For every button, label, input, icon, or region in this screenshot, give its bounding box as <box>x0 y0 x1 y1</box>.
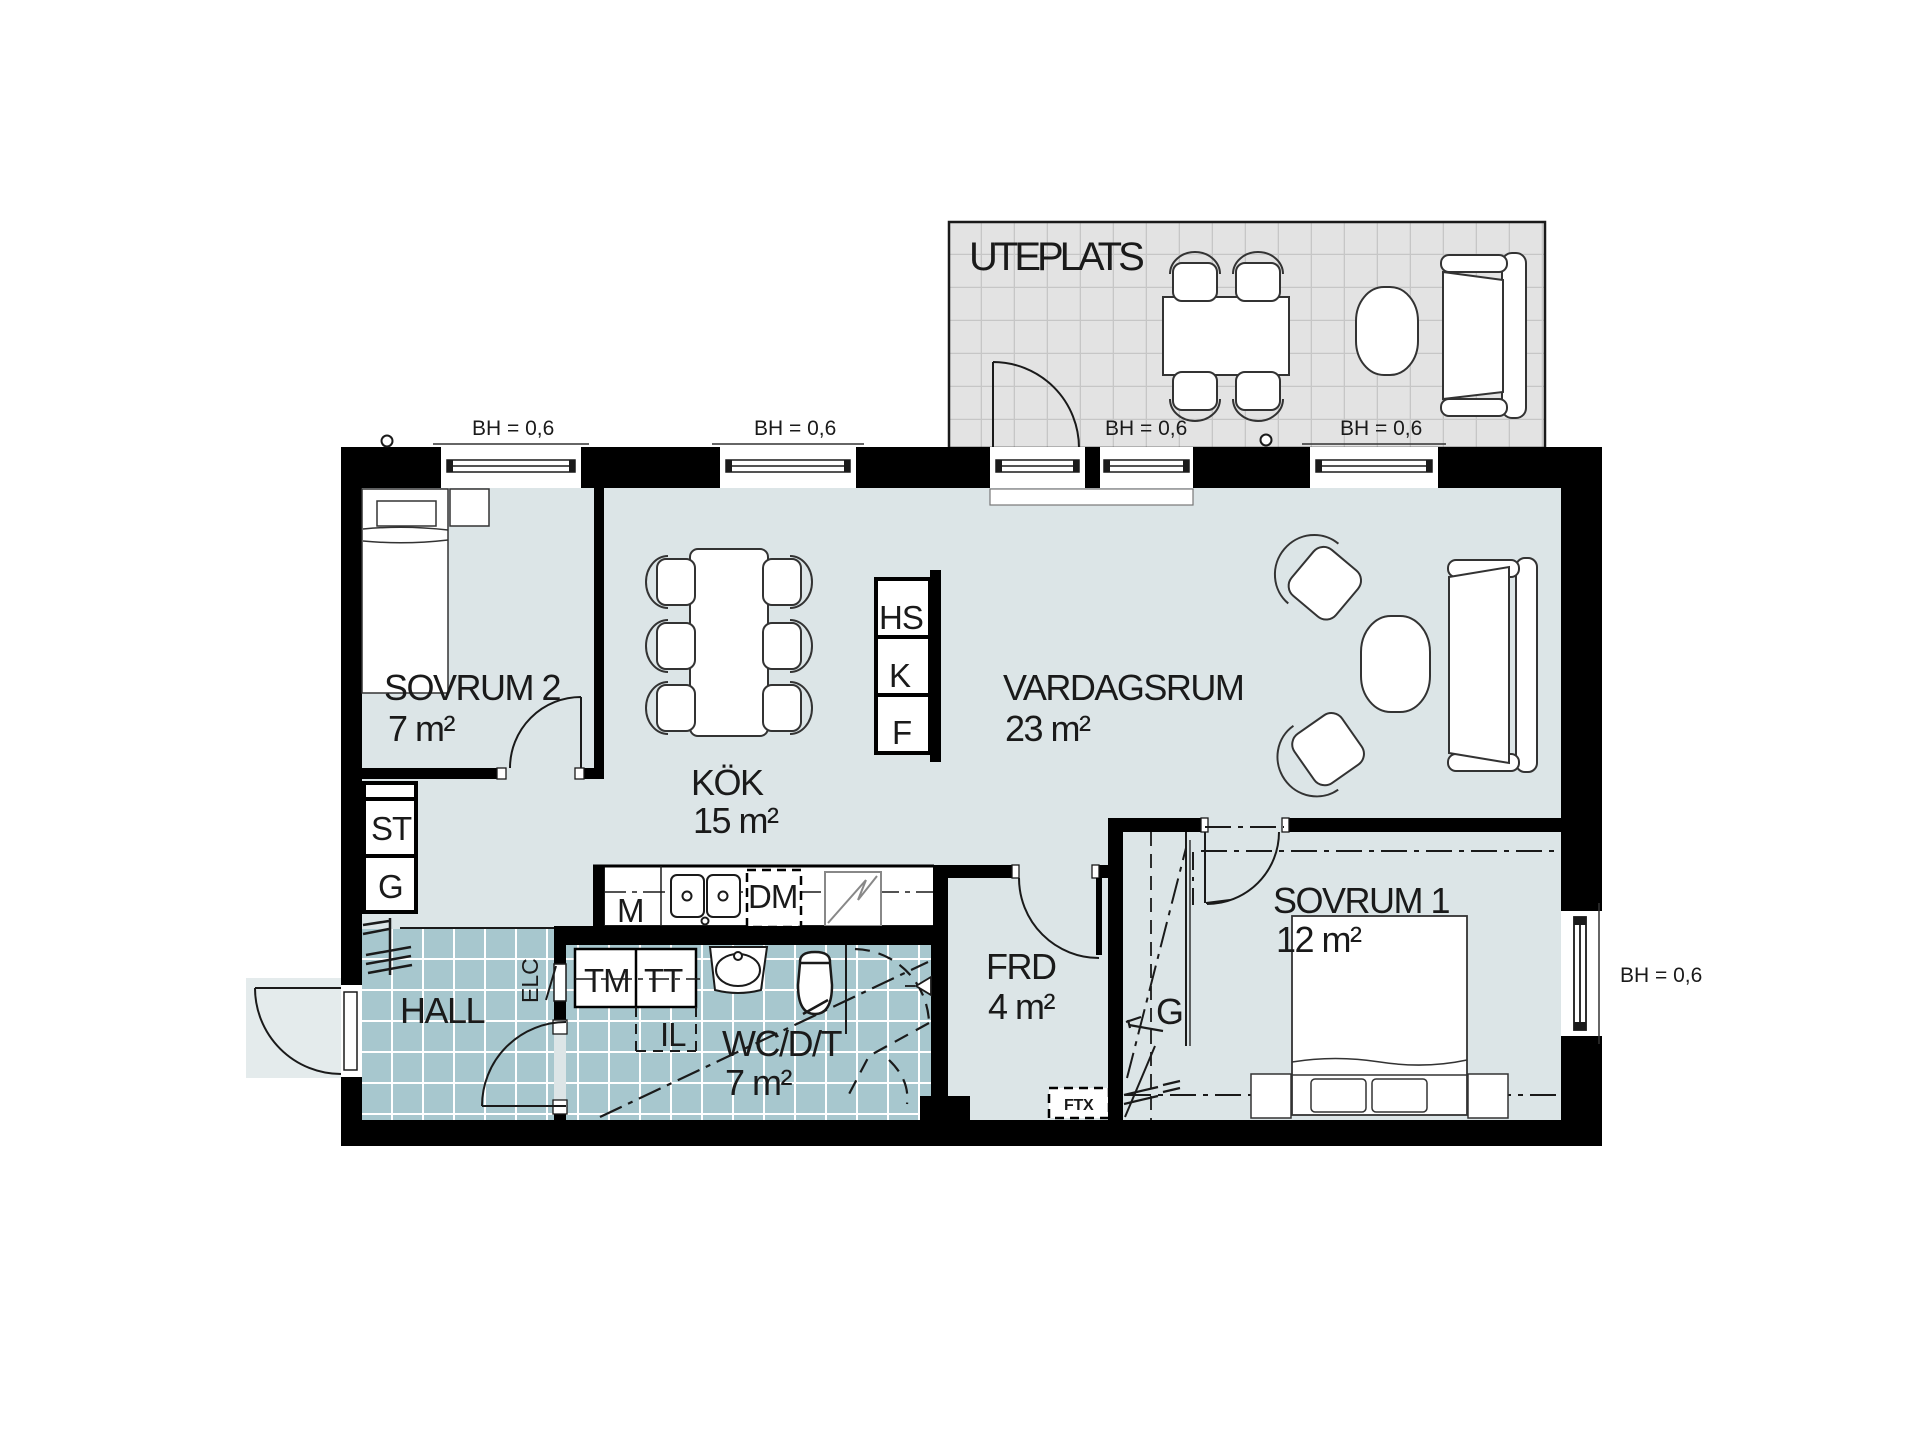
svg-text:HS: HS <box>879 599 923 636</box>
svg-text:BH = 0,6: BH = 0,6 <box>754 417 836 440</box>
svg-text:ELC: ELC <box>517 958 543 1003</box>
svg-text:BH = 0,6: BH = 0,6 <box>1340 417 1422 440</box>
svg-text:12 m²: 12 m² <box>1276 919 1362 960</box>
svg-text:IL: IL <box>660 1016 686 1053</box>
svg-text:23 m²: 23 m² <box>1005 708 1091 749</box>
svg-text:K: K <box>889 657 911 694</box>
svg-text:HALL: HALL <box>400 990 485 1031</box>
svg-text:VARDAGSRUM: VARDAGSRUM <box>1003 667 1243 708</box>
svg-text:7 m²: 7 m² <box>388 708 456 749</box>
svg-text:G: G <box>378 868 403 905</box>
svg-text:BH = 0,6: BH = 0,6 <box>1620 964 1702 987</box>
svg-text:G: G <box>1156 991 1183 1032</box>
svg-text:SOVRUM 1: SOVRUM 1 <box>1273 880 1450 921</box>
svg-text:BH = 0,6: BH = 0,6 <box>472 417 554 440</box>
svg-text:F: F <box>892 714 911 751</box>
svg-text:FRD: FRD <box>986 946 1056 987</box>
svg-text:7 m²: 7 m² <box>725 1062 793 1103</box>
svg-text:M: M <box>617 892 644 929</box>
svg-text:KÖK: KÖK <box>691 762 764 803</box>
svg-text:SOVRUM 2: SOVRUM 2 <box>384 667 561 708</box>
svg-text:TM: TM <box>584 962 630 999</box>
svg-text:BH = 0,6: BH = 0,6 <box>1105 417 1187 440</box>
svg-text:4 m²: 4 m² <box>988 986 1056 1027</box>
svg-text:DM: DM <box>748 878 797 915</box>
svg-text:UTEPLATS: UTEPLATS <box>969 235 1143 279</box>
svg-text:ST: ST <box>371 810 412 847</box>
svg-text:15 m²: 15 m² <box>693 800 779 841</box>
svg-text:WC/D/T: WC/D/T <box>722 1023 842 1064</box>
svg-text:FTX: FTX <box>1064 1097 1094 1114</box>
svg-text:TT: TT <box>644 962 683 999</box>
